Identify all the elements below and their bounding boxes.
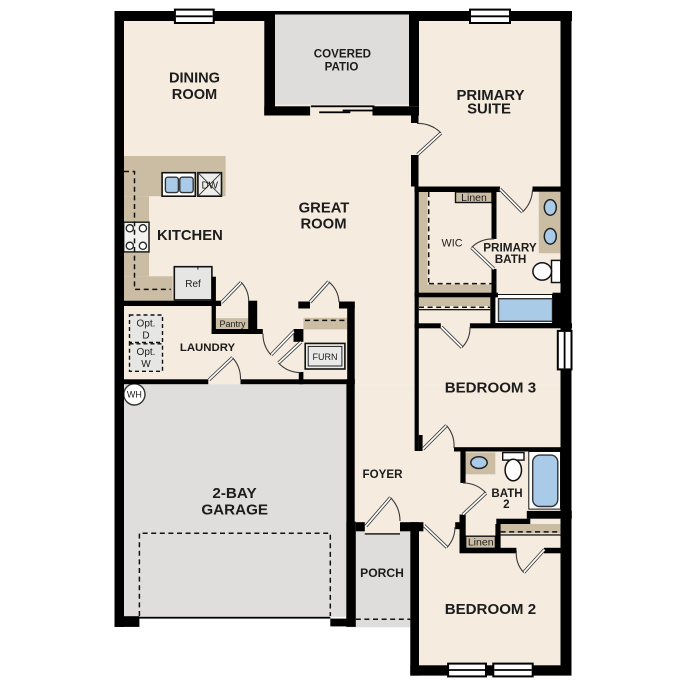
svg-text:PATIO: PATIO — [325, 61, 359, 74]
svg-text:Opt.: Opt. — [137, 347, 156, 358]
svg-text:ROOM: ROOM — [172, 87, 217, 103]
svg-text:W: W — [141, 359, 151, 370]
svg-text:Opt.: Opt. — [137, 319, 156, 330]
svg-text:BEDROOM 2: BEDROOM 2 — [445, 601, 536, 618]
svg-text:COVERED: COVERED — [314, 47, 371, 60]
svg-text:ROOM: ROOM — [300, 217, 346, 233]
svg-text:SUITE: SUITE — [467, 102, 511, 118]
svg-text:Linen: Linen — [461, 192, 487, 204]
svg-text:FURN: FURN — [313, 352, 338, 362]
svg-text:Ref: Ref — [185, 279, 201, 290]
svg-text:BEDROOM 3: BEDROOM 3 — [445, 380, 536, 397]
svg-text:GARAGE: GARAGE — [201, 501, 268, 518]
svg-text:LAUNDRY: LAUNDRY — [180, 342, 236, 354]
svg-text:FOYER: FOYER — [363, 468, 404, 481]
svg-text:Linen: Linen — [468, 537, 494, 549]
svg-text:WH: WH — [127, 389, 142, 399]
svg-text:Pantry: Pantry — [219, 319, 246, 329]
svg-text:GREAT: GREAT — [299, 200, 350, 216]
svg-text:DW: DW — [201, 181, 218, 192]
svg-text:BATH: BATH — [495, 253, 527, 266]
svg-text:DINING: DINING — [169, 71, 220, 87]
svg-text:WIC: WIC — [442, 237, 463, 249]
svg-text:PORCH: PORCH — [360, 566, 404, 580]
svg-text:2-BAY: 2-BAY — [212, 485, 256, 502]
svg-text:KITCHEN: KITCHEN — [157, 228, 223, 244]
svg-text:D: D — [142, 331, 149, 342]
svg-text:2: 2 — [503, 498, 509, 511]
